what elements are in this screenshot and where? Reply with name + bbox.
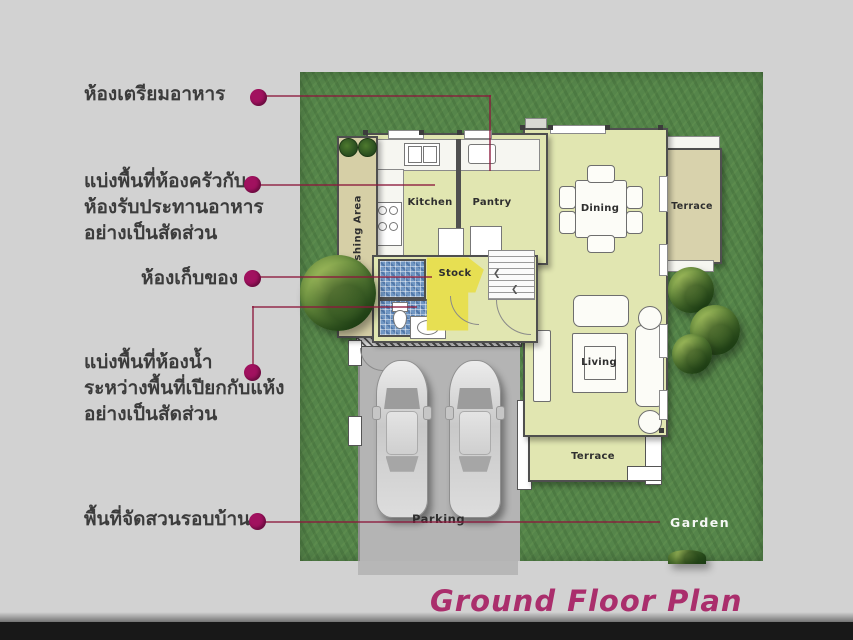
dining-label: Dining [575,180,625,236]
bush [668,550,706,564]
leader-dot [244,364,261,381]
window [659,176,668,212]
wall-post [659,428,664,433]
window [464,130,492,139]
car-mirror [372,406,381,420]
car-mirror [423,406,432,420]
potted-plant [358,138,377,157]
annotation-storage: ห้องเก็บของ [84,265,238,291]
leader-line [252,306,254,366]
potted-plant [339,138,358,157]
garden-label: Garden [670,515,730,530]
burner [389,222,398,231]
sink-bowl [408,146,422,163]
tree [300,255,376,331]
fence-pillar [348,416,362,446]
stock-label: Stock [431,267,479,280]
terrace-right-label: Terrace [664,150,720,262]
terrace-corner-wall [627,466,662,481]
dining-chair [559,186,576,209]
pantry-sink [468,144,496,164]
sink-bowl [423,146,437,163]
leader-line [263,521,660,523]
driveway-exit [358,561,518,575]
car-left [376,360,428,518]
leader-dot [250,89,267,106]
car-mirror [496,406,505,420]
leader-line [259,276,432,278]
window [550,125,606,134]
wall-post [605,125,610,130]
parking-label: Parking [412,512,465,526]
car-roof [459,411,491,455]
sofa-top [573,295,629,327]
leader-dot [244,270,261,287]
dining-chair [559,211,576,234]
dining-chair [587,235,615,253]
leader-line [263,95,491,97]
leader-line [259,184,435,186]
wall-post [419,130,424,135]
bush [672,334,712,374]
dining-chair [626,186,643,209]
window [659,324,668,358]
kitchen-label: Kitchen [400,195,460,209]
annotation-kitchen-dining: แบ่งพื้นที่ห้องครัวกับ ห้องรับประทานอาหา… [84,168,264,246]
car-roof [386,411,418,455]
bottom-fade [0,612,853,622]
annotation-bathroom: แบ่งพื้นที่ห้องน้ำ ระหว่างพื้นที่เปียกกั… [84,349,284,427]
annotation-pantry: ห้องเตรียมอาหาร [84,81,225,107]
annotation-garden: พื้นที่จัดสวนรอบบ้าน [84,506,250,532]
leader-line [489,95,491,171]
pantry-label: Pantry [467,195,517,209]
terrace-right: Terrace [662,148,722,264]
burner [378,222,387,231]
leader-line [252,306,417,308]
leader-dot [244,176,261,193]
window [659,244,668,276]
car-rear-window [459,456,492,472]
bottom-bar [0,622,853,640]
dining-chair [626,211,643,234]
staircase: ❮ ❮ [488,250,535,300]
kitchen-pantry-wall [456,139,461,229]
burner [378,206,387,215]
wall-post [520,125,525,130]
wall-post [457,130,462,135]
car-windshield [457,388,493,410]
living-label: Living [572,333,626,391]
car-right [449,360,501,518]
floor-plan-page: Parking Terrace Terrace Dining Living [0,0,853,640]
car-windshield [384,388,420,410]
window [659,390,668,420]
wall-post [363,130,368,135]
wet-area-tile-upper [378,259,426,299]
car-rear-window [386,456,419,472]
wall-post [548,125,553,130]
leader-dot [249,513,266,530]
car-mirror [445,406,454,420]
burner [389,206,398,215]
site-plan: Parking Terrace Terrace Dining Living [300,72,763,561]
wall-post [658,125,663,130]
